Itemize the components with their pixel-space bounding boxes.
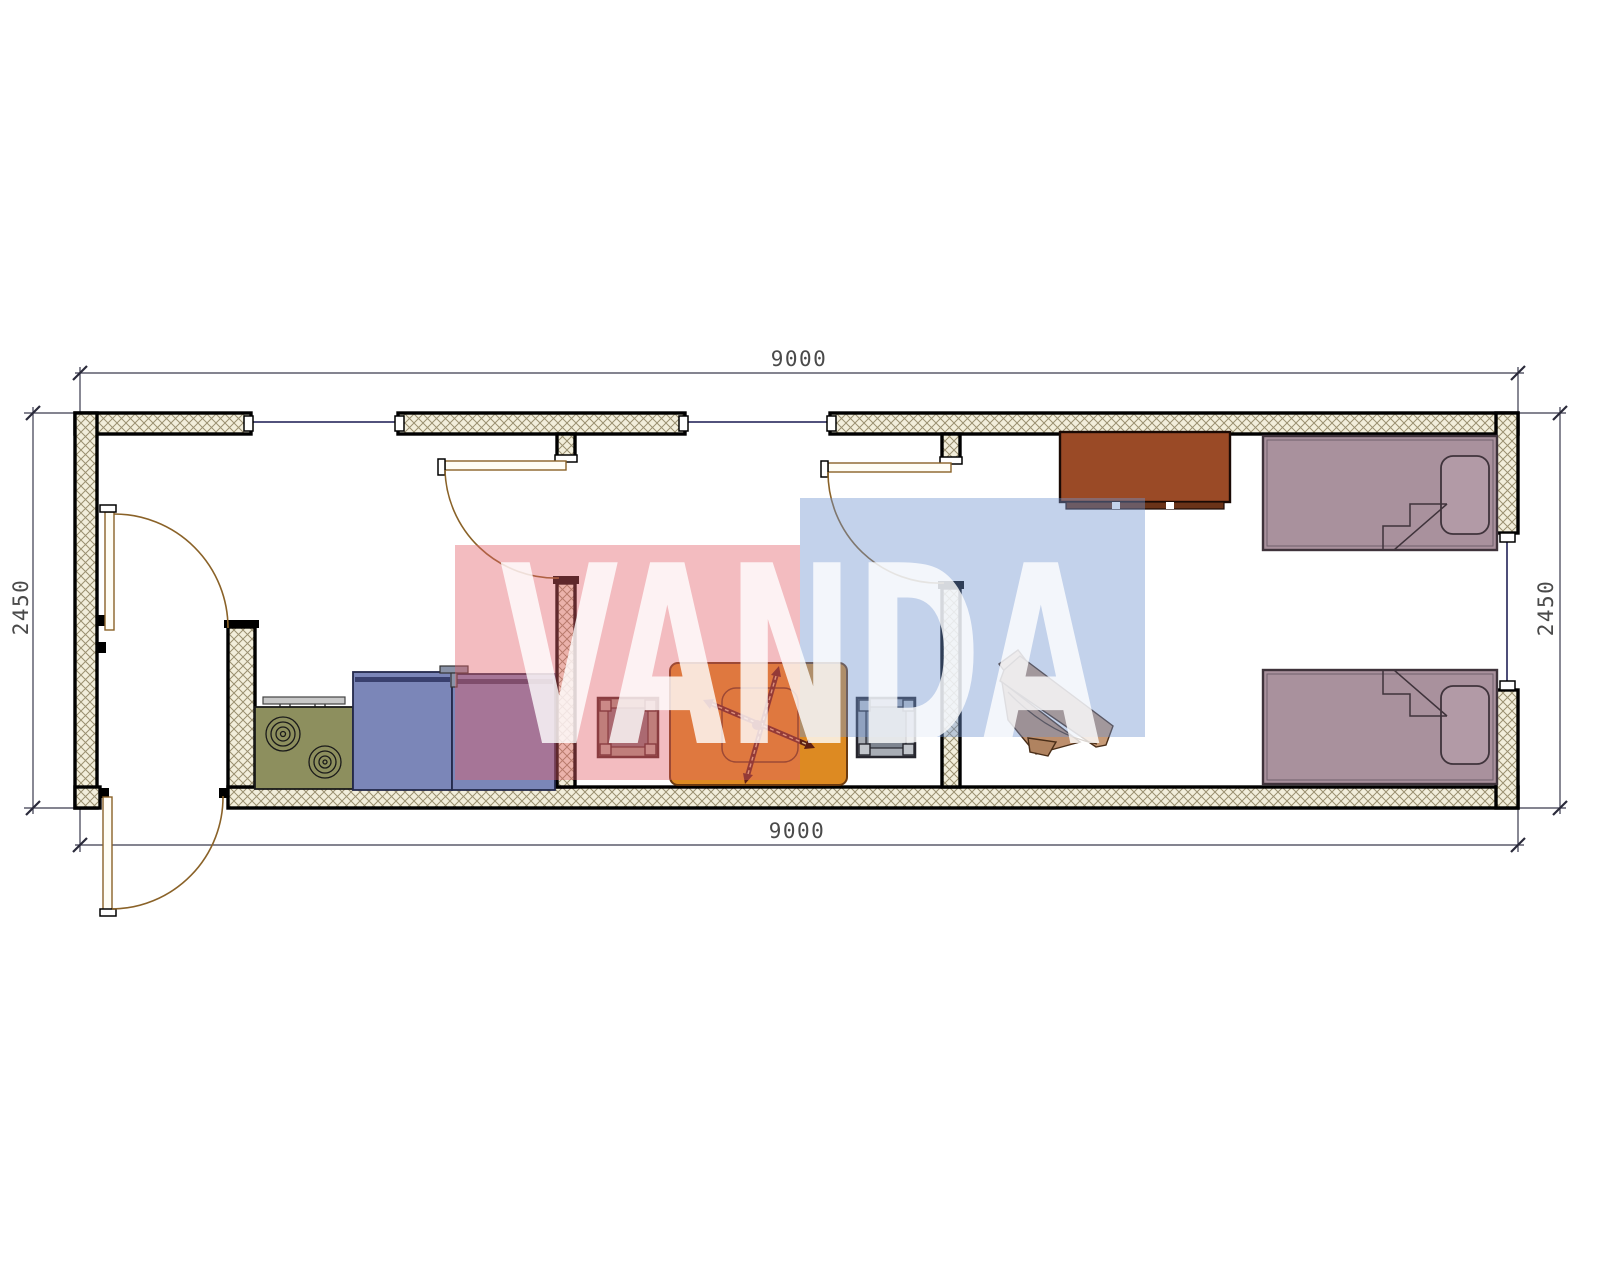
hall-interior-door [100, 505, 228, 630]
pillow [1441, 686, 1489, 764]
entry-door-leaf [103, 797, 112, 911]
bed-lower [1263, 670, 1497, 784]
hall-door-jamb-2 [97, 642, 106, 653]
entry-door-swing-arc [112, 796, 223, 909]
watermark-text: VANDA [500, 514, 1100, 802]
room-2-door-leaf [828, 463, 951, 472]
watermark: VANDA [455, 498, 1145, 802]
right-wall-lower [1496, 690, 1518, 808]
bed-upper [1263, 436, 1497, 550]
entry-exterior-door [100, 796, 223, 916]
dimension-right: 2450 [1518, 406, 1567, 815]
dimension-top: 9000 [73, 347, 1525, 413]
bottom-wall-stub-left [75, 787, 100, 808]
partition-1-stub [557, 434, 575, 457]
kitchen-shelf [263, 697, 345, 704]
stove [255, 707, 353, 789]
dresser [1060, 432, 1230, 509]
dimension-bottom-value: 9000 [769, 819, 826, 843]
door-cap [438, 459, 445, 475]
entry-hall-partition [228, 627, 255, 787]
window-cap [244, 416, 253, 431]
window-cap [1500, 533, 1515, 542]
entry-partition-cap [224, 620, 259, 628]
partition-2-stub [942, 434, 960, 459]
left-wall [75, 413, 97, 808]
dresser-handle-2 [1166, 502, 1174, 509]
door-cap [100, 909, 116, 916]
door-cap [100, 505, 116, 512]
hall-door-swing-arc [114, 514, 228, 628]
dimension-left-value: 2450 [9, 579, 33, 636]
top-wall-segment-2 [398, 413, 685, 434]
door-cap [821, 461, 828, 477]
window-cap [395, 416, 404, 431]
top-wall-segment-1 [75, 413, 251, 434]
dimension-top-value: 9000 [771, 347, 828, 371]
dimension-right-value: 2450 [1534, 580, 1558, 637]
floor-plan-page: 9000 9000 2450 2450 [0, 0, 1600, 1280]
floor-plan-canvas: 9000 9000 2450 2450 [0, 0, 1600, 1280]
hall-door-leaf [105, 512, 114, 630]
dimension-bottom: 9000 [73, 808, 1525, 852]
dimension-left: 2450 [9, 406, 80, 815]
sink-cabinet [353, 672, 452, 790]
window-cap [679, 416, 688, 431]
room-1-door-leaf [445, 461, 566, 470]
window-cap [827, 416, 836, 431]
sink-cabinet-edge [355, 677, 450, 682]
pillow [1441, 456, 1489, 534]
right-wall-upper [1496, 413, 1518, 533]
window-cap [1500, 681, 1515, 690]
